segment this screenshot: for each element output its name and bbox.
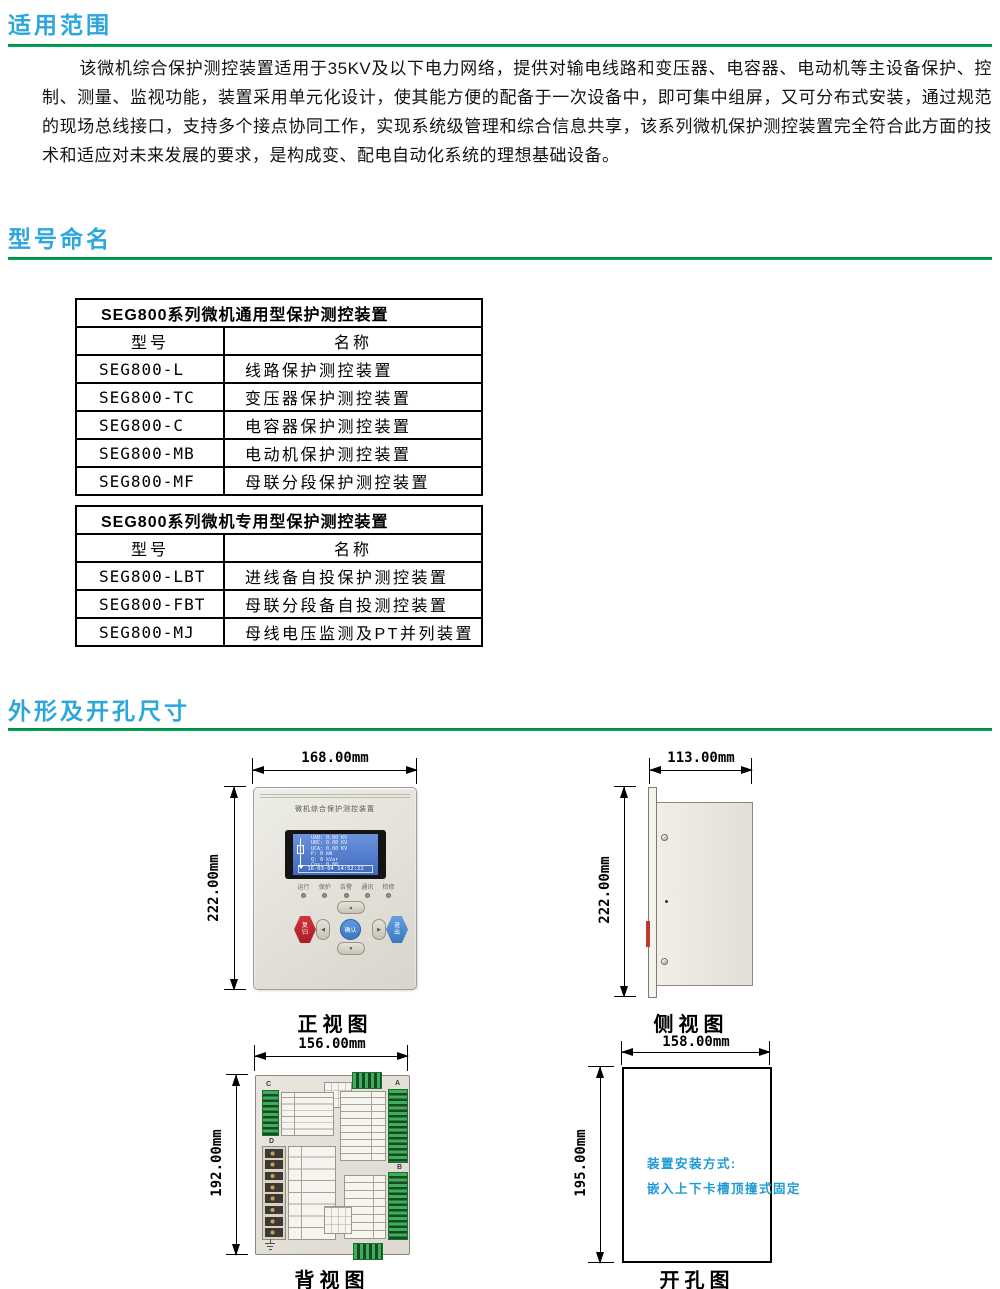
extension-line xyxy=(254,1045,255,1071)
section-heading-naming: 型号命名 xyxy=(8,220,112,254)
terminal-screw xyxy=(265,1228,283,1237)
table-row: SEG800-MF 母联分段保护测控装置 xyxy=(76,467,482,495)
side-width-label: 113.00mm xyxy=(641,750,761,766)
extension-line xyxy=(614,996,636,997)
general-model-table: SEG800系列微机通用型保护测控装置 型号 名称 SEG800-L 线路保护测… xyxy=(75,298,483,496)
exit-button-label: 退出 xyxy=(393,923,401,936)
table-title: SEG800系列微机通用型保护测控装置 xyxy=(76,299,482,327)
device-side-body xyxy=(657,802,753,986)
cutout-height-label: 195.00mm xyxy=(573,1103,589,1223)
green-rule xyxy=(8,728,992,731)
led-label: 告警 xyxy=(337,882,356,891)
table-row: SEG800-L 线路保护测控装置 xyxy=(76,355,482,383)
connector-label-b: B xyxy=(397,1164,402,1171)
col-header-model: 型号 xyxy=(76,327,224,355)
panel-groove xyxy=(260,797,410,798)
led-icon xyxy=(322,893,327,898)
pin-hole-icon xyxy=(665,900,668,903)
table-row: SEG800-MB 电动机保护测控装置 xyxy=(76,439,482,467)
back-height-dimension-arrow xyxy=(236,1075,237,1255)
model-cell: SEG800-MJ xyxy=(76,618,224,646)
col-header-model: 型号 xyxy=(76,534,224,562)
col-header-name: 名称 xyxy=(224,534,482,562)
green-rule xyxy=(8,44,992,47)
terminal-connector-bottom xyxy=(353,1243,383,1260)
extension-line xyxy=(588,1066,614,1067)
led-icon xyxy=(344,893,349,898)
extension-line xyxy=(621,1041,622,1065)
side-height-label: 222.00mm xyxy=(597,830,613,950)
terminal-screw xyxy=(265,1194,283,1203)
name-cell: 电容器保护测控装置 xyxy=(224,411,482,439)
special-model-table: SEG800系列微机专用型保护测控装置 型号 名称 SEG800-LBT 进线备… xyxy=(75,505,483,647)
left-arrow-icon: ◀ xyxy=(321,927,325,933)
dpad-up-button: ▲ xyxy=(337,901,365,914)
lcd-screen: UAB: 0.00 KV UBC: 0.00 KV UCA: 0.00 KV P… xyxy=(293,834,378,875)
extension-line xyxy=(416,758,417,784)
terminal-screw xyxy=(265,1217,283,1226)
exit-button: 退出 xyxy=(386,916,408,943)
led-indicator: 检修 xyxy=(379,882,398,898)
terminal-screw xyxy=(265,1183,283,1192)
front-height-dimension-arrow xyxy=(234,787,235,990)
section-heading-dimensions: 外形及开孔尺寸 xyxy=(8,692,190,726)
terminal-connector-b xyxy=(388,1172,408,1240)
latch-clip-icon xyxy=(646,921,650,947)
model-cell: SEG800-LBT xyxy=(76,562,224,590)
led-label: 运行 xyxy=(294,882,313,891)
cutout-outline: 装置安装方式: 嵌入上下卡槽顶撞式固定 xyxy=(622,1067,772,1263)
back-width-label: 156.00mm xyxy=(272,1036,392,1052)
led-indicator: 保护 xyxy=(315,882,334,898)
front-view-caption: 正视图 xyxy=(270,1008,400,1037)
terminal-connector-top xyxy=(352,1072,382,1089)
name-cell: 母联分段备自投测控装置 xyxy=(224,590,482,618)
back-height-label: 192.00mm xyxy=(209,1103,225,1223)
name-cell: 电动机保护测控装置 xyxy=(224,439,482,467)
extension-line xyxy=(588,1262,614,1263)
extension-line xyxy=(252,758,253,784)
table-row: SEG800-C 电容器保护测控装置 xyxy=(76,411,482,439)
dpad-right-button: ▶ xyxy=(372,919,386,940)
extension-line xyxy=(751,758,752,784)
terminal-label-table xyxy=(324,1206,352,1234)
led-indicator: 通讯 xyxy=(358,882,377,898)
confirm-button-label: 确认 xyxy=(344,925,356,934)
extension-line xyxy=(224,989,246,990)
front-height-label: 222.00mm xyxy=(206,828,222,948)
reset-button: 复归 xyxy=(294,916,316,943)
terminal-screw xyxy=(265,1160,283,1169)
extension-line xyxy=(226,1254,248,1255)
datasheet-page: 适用范围 该微机综合保护测控装置适用于35KV及以下电力网络，提供对输电线路和变… xyxy=(0,0,1000,1289)
model-cell: SEG800-TC xyxy=(76,383,224,411)
led-label: 检修 xyxy=(379,882,398,891)
model-cell: SEG800-L xyxy=(76,355,224,383)
device-back-panel: C D A B xyxy=(255,1075,410,1255)
up-arrow-icon: ▲ xyxy=(349,905,354,911)
terminal-strip-d xyxy=(262,1146,286,1240)
back-width-dimension-arrow xyxy=(255,1056,408,1057)
connector-label-c: C xyxy=(266,1081,271,1088)
name-cell: 母线电压监测及PT并列装置 xyxy=(224,618,482,646)
model-cell: SEG800-MB xyxy=(76,439,224,467)
extension-line xyxy=(769,1041,770,1065)
name-cell: 母联分段保护测控装置 xyxy=(224,467,482,495)
side-view-caption: 侧视图 xyxy=(626,1008,756,1037)
terminal-connector-a xyxy=(388,1089,408,1163)
panel-groove xyxy=(260,794,410,795)
cutout-view-caption: 开孔图 xyxy=(632,1264,762,1289)
front-width-label: 168.00mm xyxy=(275,750,395,766)
lcd-measurements: UAB: 0.00 KV UBC: 0.00 KV UCA: 0.00 KV P… xyxy=(311,836,347,868)
led-label: 通讯 xyxy=(358,882,377,891)
led-label: 保护 xyxy=(315,882,334,891)
led-indicator: 告警 xyxy=(337,882,356,898)
table-row: SEG800-LBT 进线备自投保护测控装置 xyxy=(76,562,482,590)
lcd-bezel: UAB: 0.00 KV UBC: 0.00 KV UCA: 0.00 KV P… xyxy=(285,830,386,879)
led-indicator: 运行 xyxy=(294,882,313,898)
table-title: SEG800系列微机专用型保护测控装置 xyxy=(76,506,482,534)
confirm-button: 确认 xyxy=(340,919,361,940)
name-cell: 进线备自投保护测控装置 xyxy=(224,562,482,590)
cutout-height-dimension-arrow xyxy=(600,1067,601,1263)
extension-line xyxy=(649,758,650,784)
model-cell: SEG800-MF xyxy=(76,467,224,495)
terminal-screw xyxy=(265,1172,283,1181)
down-arrow-icon: ▼ xyxy=(349,946,354,952)
terminal-label-table xyxy=(340,1091,386,1161)
side-width-dimension-arrow xyxy=(650,770,752,771)
name-cell: 线路保护测控装置 xyxy=(224,355,482,383)
extension-line xyxy=(614,786,636,787)
screw-icon xyxy=(661,834,668,841)
extension-line xyxy=(407,1045,408,1071)
mounting-note-line1: 装置安装方式: xyxy=(647,1153,737,1172)
cutout-width-label: 158.00mm xyxy=(636,1034,756,1050)
extension-line xyxy=(226,1074,248,1075)
screw-icon xyxy=(661,958,668,965)
table-row: SEG800-TC 变压器保护测控装置 xyxy=(76,383,482,411)
side-height-dimension-arrow xyxy=(624,787,625,997)
green-rule xyxy=(8,257,992,260)
led-icon xyxy=(301,893,306,898)
dpad-down-button: ▼ xyxy=(337,942,365,955)
led-icon xyxy=(386,893,391,898)
led-indicator-row: 运行 保护 告警 通讯 检修 xyxy=(294,882,398,898)
section-heading-scope: 适用范围 xyxy=(8,6,112,40)
extension-line xyxy=(224,786,246,787)
device-front-panel: 微机综合保护测控装置 UAB: 0.00 KV UBC: 0.00 KV UCA… xyxy=(253,787,417,990)
reset-button-label: 复归 xyxy=(301,923,309,936)
front-width-dimension-arrow xyxy=(253,770,417,771)
terminal-screw xyxy=(265,1206,283,1215)
cutout-width-dimension-arrow xyxy=(622,1052,770,1053)
model-cell: SEG800-FBT xyxy=(76,590,224,618)
right-arrow-icon: ▶ xyxy=(377,927,381,933)
table-row: SEG800-FBT 母联分段备自投测控装置 xyxy=(76,590,482,618)
device-panel-title: 微机综合保护测控装置 xyxy=(254,804,416,814)
ground-icon xyxy=(264,1242,276,1253)
connector-label-d: D xyxy=(269,1138,274,1145)
breaker-symbol-icon xyxy=(297,845,304,854)
lcd-datetime: 16-03-04 14:52:22 xyxy=(298,865,373,873)
connector-label-a: A xyxy=(395,1080,400,1087)
dpad-left-button: ◀ xyxy=(316,919,330,940)
terminal-screw xyxy=(265,1149,283,1158)
terminal-label-table xyxy=(281,1092,334,1136)
mounting-note-line2: 嵌入上下卡槽顶撞式固定 xyxy=(647,1178,801,1197)
table-row: SEG800-MJ 母线电压监测及PT并列装置 xyxy=(76,618,482,646)
terminal-connector-c xyxy=(262,1090,279,1136)
device-side-flange xyxy=(648,787,657,998)
col-header-name: 名称 xyxy=(224,327,482,355)
scope-paragraph: 该微机综合保护测控装置适用于35KV及以下电力网络，提供对输电线路和变压器、电容… xyxy=(42,54,992,170)
name-cell: 变压器保护测控装置 xyxy=(224,383,482,411)
back-view-caption: 背视图 xyxy=(267,1264,397,1289)
model-cell: SEG800-C xyxy=(76,411,224,439)
led-icon xyxy=(365,893,370,898)
